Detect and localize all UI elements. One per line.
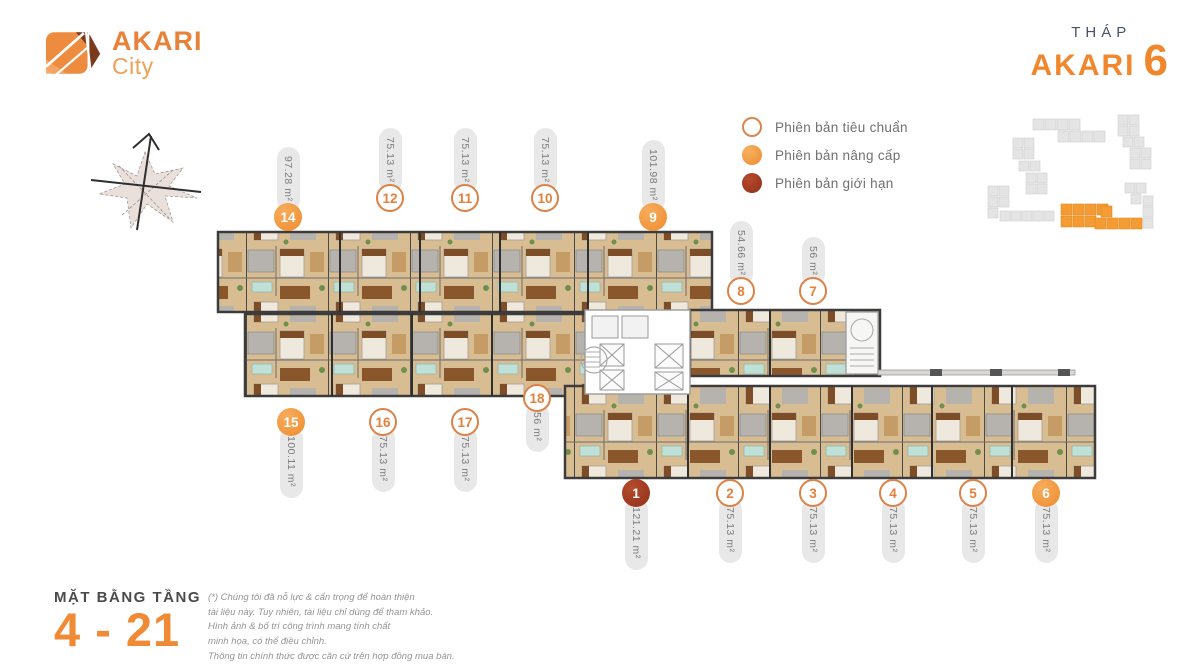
unit-badge-11: 11 bbox=[451, 184, 479, 212]
unit-3: 375.13 m² bbox=[799, 479, 827, 563]
stair-block bbox=[846, 312, 878, 374]
legend-limited-icon bbox=[742, 173, 762, 193]
floor-title: MẶT BẰNG TẦNG 4 - 21 bbox=[54, 589, 201, 653]
unit-badge-6: 6 bbox=[1032, 479, 1060, 507]
unit-badge-15: 15 bbox=[277, 408, 305, 436]
legend-upgrade-icon bbox=[742, 145, 762, 165]
akari-logo-icon bbox=[46, 28, 102, 78]
disclaimer-line-3: Hình ảnh & bố trí công trình mang tính c… bbox=[208, 620, 455, 635]
tower-number: 6 bbox=[1144, 41, 1168, 81]
unit-area-16: 75.13 m² bbox=[372, 427, 395, 492]
unit-badge-17: 17 bbox=[451, 408, 479, 436]
strip-top bbox=[218, 232, 712, 312]
tower-title: THÁP AKARI 6 bbox=[1031, 24, 1168, 83]
unit-10: 75.13 m²10 bbox=[531, 128, 559, 212]
strip-bottom bbox=[565, 386, 1095, 478]
unit-badge-12: 12 bbox=[376, 184, 404, 212]
disclaimer-line-4: minh họa, có thể điều chỉnh. bbox=[208, 635, 455, 650]
unit-badge-4: 4 bbox=[879, 479, 907, 507]
tower-name: AKARI bbox=[1031, 49, 1136, 83]
unit-area-3: 75.13 m² bbox=[802, 498, 825, 563]
disclaimer: (*) Chúng tôi đã nỗ lực & cẩn trọng để h… bbox=[208, 591, 455, 665]
unit-4: 475.13 m² bbox=[879, 479, 907, 563]
floorplan-graphic bbox=[200, 220, 1110, 490]
unit-16: 1675.13 m² bbox=[369, 408, 397, 492]
legend-limited-label: Phiên bản giới hạn bbox=[775, 176, 894, 191]
unit-area-17: 75.13 m² bbox=[454, 427, 477, 492]
legend-standard-label: Phiên bản tiêu chuẩn bbox=[775, 120, 908, 135]
legend-item-upgrade: Phiên bản nâng cấp bbox=[742, 145, 908, 165]
unit-9: 101.98 m²9 bbox=[639, 140, 667, 231]
unit-badge-3: 3 bbox=[799, 479, 827, 507]
unit-badge-16: 16 bbox=[369, 408, 397, 436]
unit-area-1: 121.21 m² bbox=[625, 498, 648, 570]
akari-city-logo: AKARI City bbox=[46, 28, 203, 78]
legend-item-standard: Phiên bản tiêu chuẩn bbox=[742, 117, 908, 137]
unit-area-5: 75.13 m² bbox=[962, 498, 985, 563]
unit-badge-10: 10 bbox=[531, 184, 559, 212]
unit-12: 75.13 m²12 bbox=[376, 128, 404, 212]
unit-area-6: 75.13 m² bbox=[1035, 498, 1058, 563]
unit-badge-14: 14 bbox=[274, 203, 302, 231]
unit-2: 275.13 m² bbox=[716, 479, 744, 563]
unit-5: 575.13 m² bbox=[959, 479, 987, 563]
unit-area-2: 75.13 m² bbox=[719, 498, 742, 563]
unit-badge-18: 18 bbox=[523, 384, 551, 412]
corridor-link bbox=[878, 369, 1075, 376]
disclaimer-line-5: Thông tin chính thức được căn cứ trên hợ… bbox=[208, 650, 455, 665]
unit-badge-1: 1 bbox=[622, 479, 650, 507]
unit-7: 56 m²7 bbox=[799, 237, 827, 305]
logo-city-text: City bbox=[112, 55, 203, 78]
legend: Phiên bản tiêu chuẩn Phiên bản nâng cấp … bbox=[742, 117, 908, 193]
disclaimer-line-1: (*) Chúng tôi đã nỗ lực & cẩn trọng để h… bbox=[208, 591, 455, 606]
unit-1: 1121.21 m² bbox=[622, 479, 650, 570]
disclaimer-line-2: tài liệu này. Tuy nhiên, tài liệu chỉ dù… bbox=[208, 606, 455, 621]
unit-18: 1856 m² bbox=[523, 384, 551, 452]
unit-area-15: 100.11 m² bbox=[280, 427, 303, 498]
legend-item-limited: Phiên bản giới hạn bbox=[742, 173, 908, 193]
unit-badge-5: 5 bbox=[959, 479, 987, 507]
unit-area-4: 75.13 m² bbox=[882, 498, 905, 563]
unit-8: 54.66 m²8 bbox=[727, 221, 755, 305]
page: AKARI City THÁP AKARI 6 Phiên bản tiêu c… bbox=[0, 0, 1200, 670]
legend-upgrade-label: Phiên bản nâng cấp bbox=[775, 148, 901, 163]
unit-17: 1775.13 m² bbox=[451, 408, 479, 492]
unit-badge-8: 8 bbox=[727, 277, 755, 305]
core-block bbox=[581, 310, 690, 394]
unit-badge-2: 2 bbox=[716, 479, 744, 507]
unit-15: 15100.11 m² bbox=[277, 408, 305, 498]
compass-icon bbox=[85, 126, 205, 238]
floor-range: 4 - 21 bbox=[54, 606, 201, 653]
unit-badge-7: 7 bbox=[799, 277, 827, 305]
unit-11: 75.13 m²11 bbox=[451, 128, 479, 212]
unit-area-9: 101.98 m² bbox=[642, 140, 665, 212]
logo-akari-text: AKARI bbox=[112, 28, 203, 55]
unit-6: 675.13 m² bbox=[1032, 479, 1060, 563]
legend-standard-icon bbox=[742, 117, 762, 137]
unit-14: 97.28 m²14 bbox=[274, 147, 302, 231]
unit-badge-9: 9 bbox=[639, 203, 667, 231]
